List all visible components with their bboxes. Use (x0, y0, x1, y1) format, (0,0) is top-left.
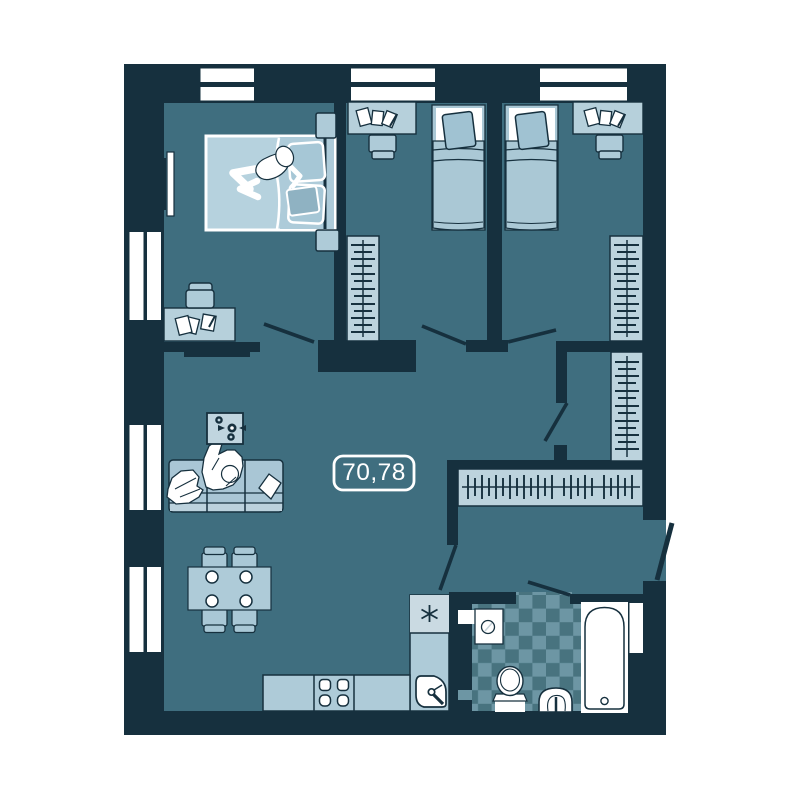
svg-text:70,78: 70,78 (342, 459, 406, 486)
